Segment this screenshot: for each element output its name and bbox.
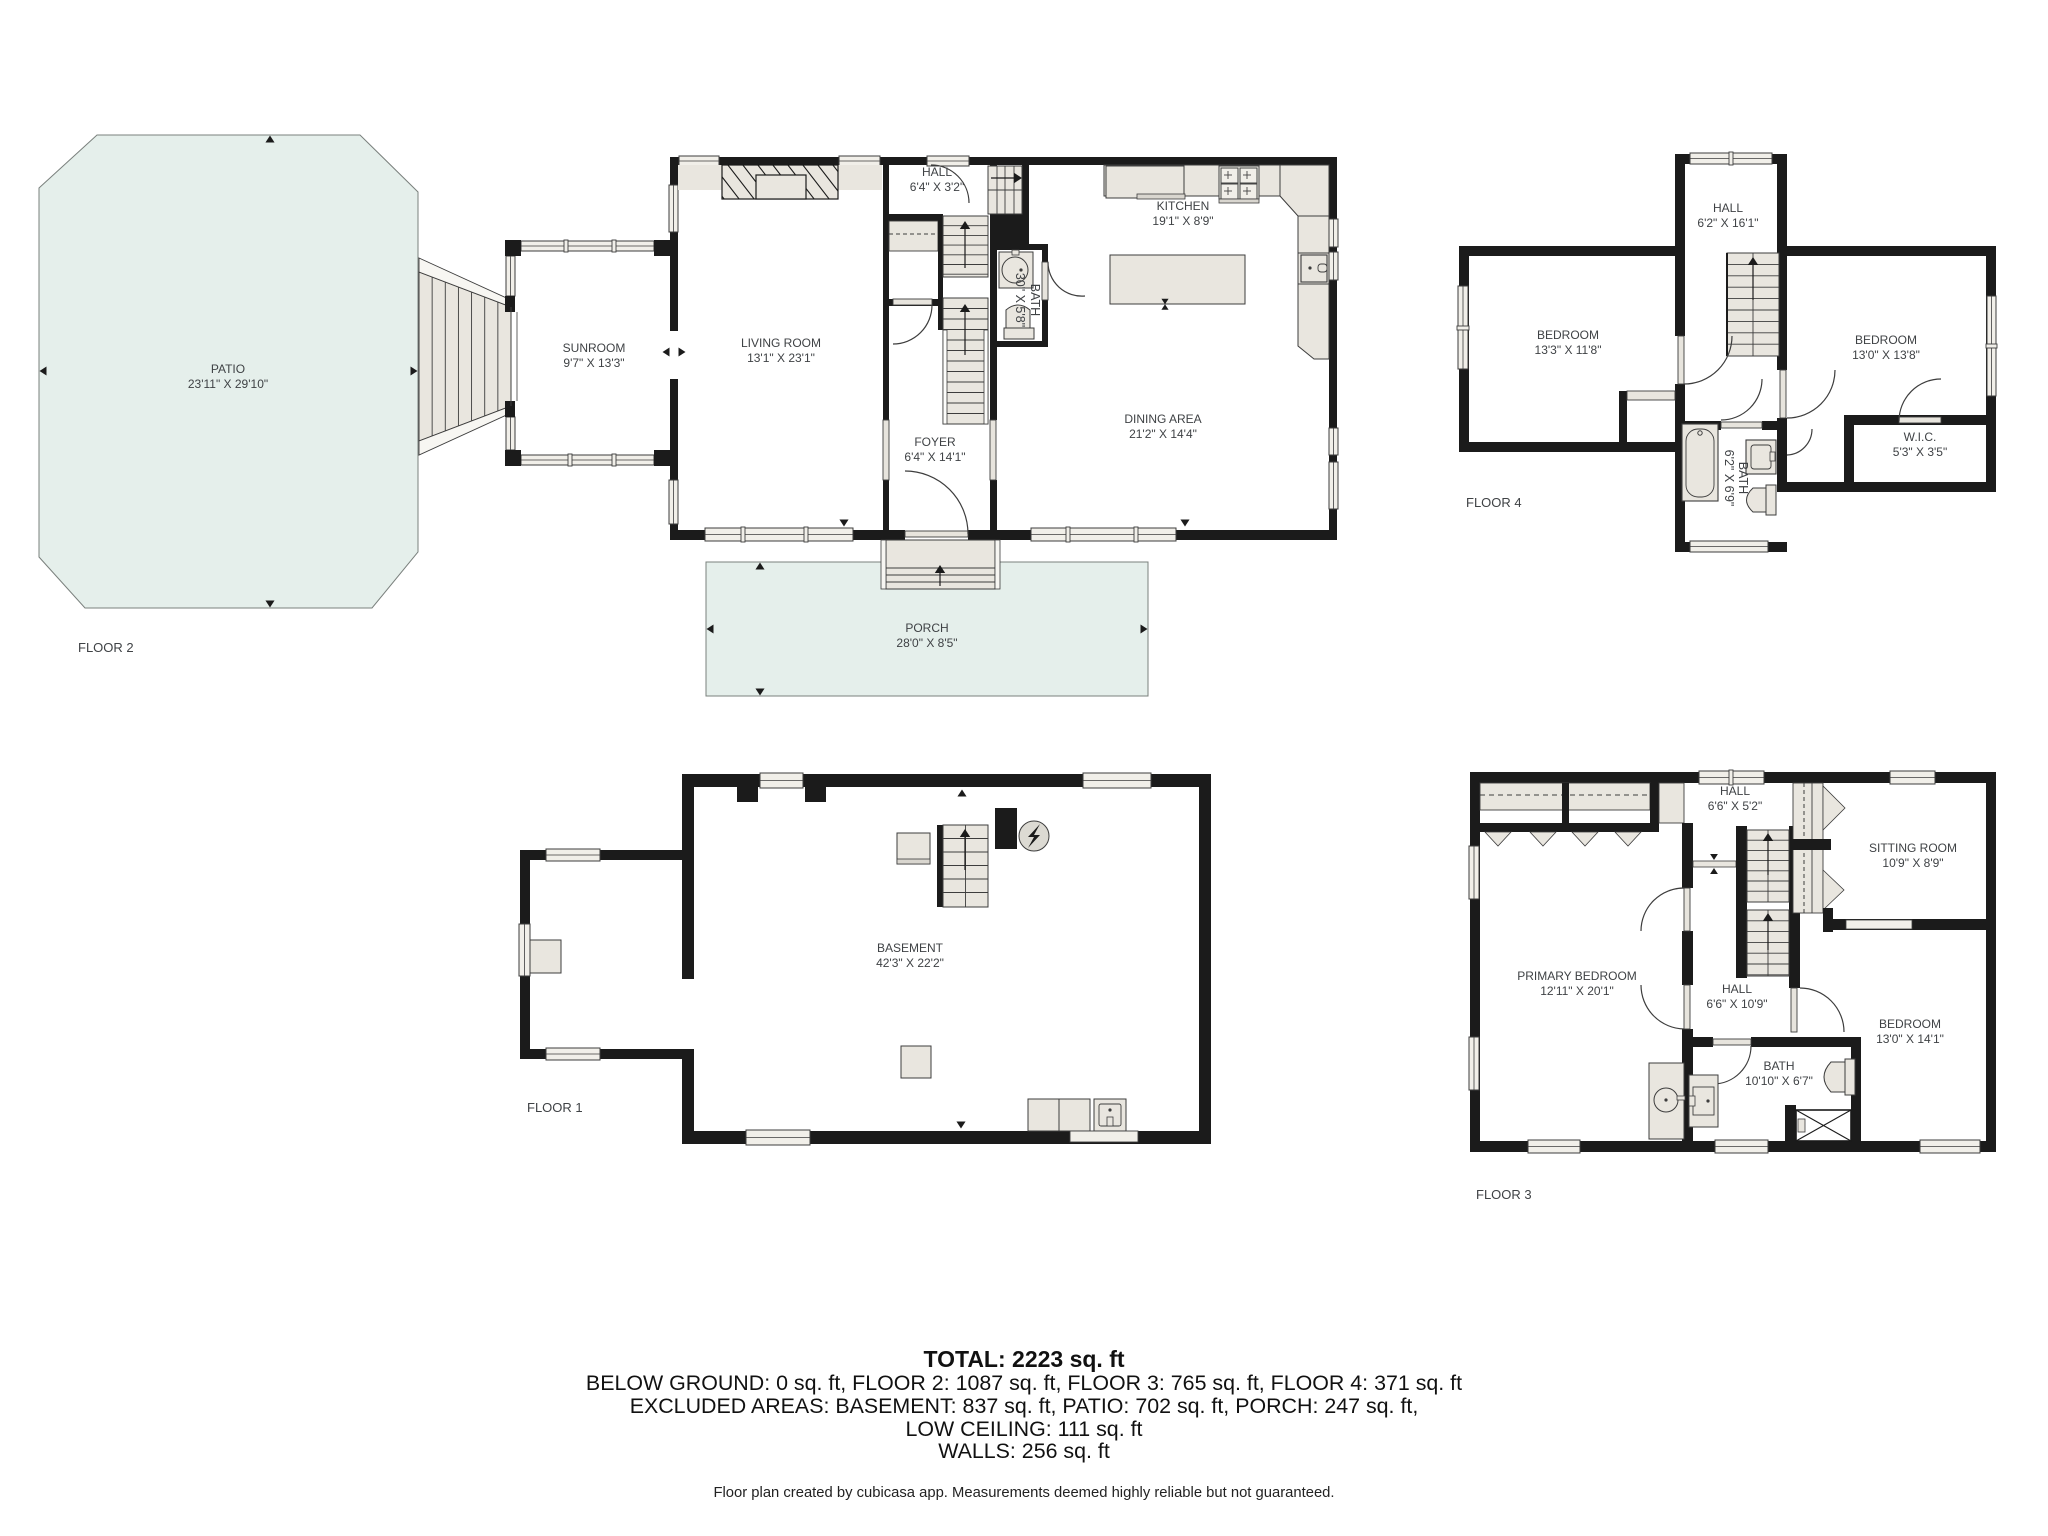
svg-text:PATIO: PATIO (211, 362, 245, 376)
svg-text:13'3" X 11'8": 13'3" X 11'8" (1535, 343, 1602, 357)
svg-text:BATH: BATH (1763, 1059, 1794, 1073)
svg-text:10'10" X 6'7": 10'10" X 6'7" (1745, 1074, 1813, 1088)
svg-text:LIVING ROOM: LIVING ROOM (741, 336, 821, 350)
svg-text:FOYER: FOYER (914, 435, 956, 449)
svg-text:HALL: HALL (1713, 201, 1743, 215)
svg-text:10'9" X 8'9": 10'9" X 8'9" (1882, 856, 1943, 870)
svg-text:6'4" X 14'1": 6'4" X 14'1" (904, 450, 965, 464)
svg-text:BELOW GROUND: 0 sq. ft, FLOOR: BELOW GROUND: 0 sq. ft, FLOOR 2: 1087 sq… (586, 1371, 1462, 1395)
svg-text:HALL: HALL (1722, 982, 1752, 996)
svg-text:FLOOR 1: FLOOR 1 (527, 1100, 583, 1115)
svg-text:BEDROOM: BEDROOM (1855, 333, 1917, 347)
svg-text:19'1" X 8'9": 19'1" X 8'9" (1152, 214, 1213, 228)
svg-text:BEDROOM: BEDROOM (1879, 1017, 1941, 1031)
svg-text:6'6" X 5'2": 6'6" X 5'2" (1708, 799, 1762, 813)
svg-text:HALL: HALL (922, 165, 952, 179)
svg-text:13'0" X 14'1": 13'0" X 14'1" (1876, 1032, 1944, 1046)
svg-text:FLOOR 2: FLOOR 2 (78, 640, 134, 655)
svg-text:23'11" X 29'10": 23'11" X 29'10" (188, 377, 268, 391)
svg-text:EXCLUDED AREAS: BASEMENT: 837: EXCLUDED AREAS: BASEMENT: 837 sq. ft, PA… (630, 1394, 1419, 1418)
svg-text:FLOOR 4: FLOOR 4 (1466, 495, 1522, 510)
svg-text:21'2" X 14'4": 21'2" X 14'4" (1129, 427, 1197, 441)
svg-text:12'11" X 20'1": 12'11" X 20'1" (1540, 984, 1614, 998)
svg-text:6'2" X 16'1": 6'2" X 16'1" (1697, 216, 1758, 230)
svg-text:SUNROOM: SUNROOM (563, 341, 626, 355)
svg-text:WALLS: 256 sq. ft: WALLS: 256 sq. ft (938, 1439, 1110, 1463)
svg-text:6'4" X 3'2": 6'4" X 3'2" (910, 180, 964, 194)
svg-text:BEDROOM: BEDROOM (1537, 328, 1599, 342)
svg-text:TOTAL: 2223 sq. ft: TOTAL: 2223 sq. ft (923, 1346, 1124, 1372)
svg-text:BATH: BATH (1736, 462, 1750, 494)
svg-text:13'1" X 23'1": 13'1" X 23'1" (747, 351, 815, 365)
svg-text:30" X 5'8": 30" X 5'8" (1013, 273, 1027, 327)
svg-text:KITCHEN: KITCHEN (1157, 199, 1210, 213)
svg-text:13'0" X 13'8": 13'0" X 13'8" (1852, 348, 1920, 362)
svg-text:6'2" X 6'9": 6'2" X 6'9" (1722, 450, 1736, 507)
svg-text:PORCH: PORCH (905, 621, 948, 635)
svg-text:LOW CEILING: 111 sq. ft: LOW CEILING: 111 sq. ft (906, 1417, 1143, 1441)
svg-text:5'3" X 3'5": 5'3" X 3'5" (1893, 445, 1947, 459)
svg-text:FLOOR 3: FLOOR 3 (1476, 1187, 1532, 1202)
svg-text:42'3" X 22'2": 42'3" X 22'2" (876, 956, 944, 970)
svg-text:HALL: HALL (1720, 784, 1750, 798)
svg-text:9'7" X 13'3": 9'7" X 13'3" (563, 356, 624, 370)
svg-text:Floor plan created by cubicasa: Floor plan created by cubicasa app. Meas… (713, 1485, 1334, 1501)
svg-text:28'0" X 8'5": 28'0" X 8'5" (896, 636, 957, 650)
svg-text:DINING AREA: DINING AREA (1124, 412, 1201, 426)
svg-text:6'6" X 10'9": 6'6" X 10'9" (1706, 997, 1767, 1011)
svg-text:BATH: BATH (1028, 284, 1042, 316)
svg-text:BASEMENT: BASEMENT (877, 941, 944, 955)
svg-text:PRIMARY BEDROOM: PRIMARY BEDROOM (1517, 969, 1637, 983)
svg-text:SITTING ROOM: SITTING ROOM (1869, 841, 1957, 855)
svg-text:W.I.C.: W.I.C. (1904, 430, 1937, 444)
